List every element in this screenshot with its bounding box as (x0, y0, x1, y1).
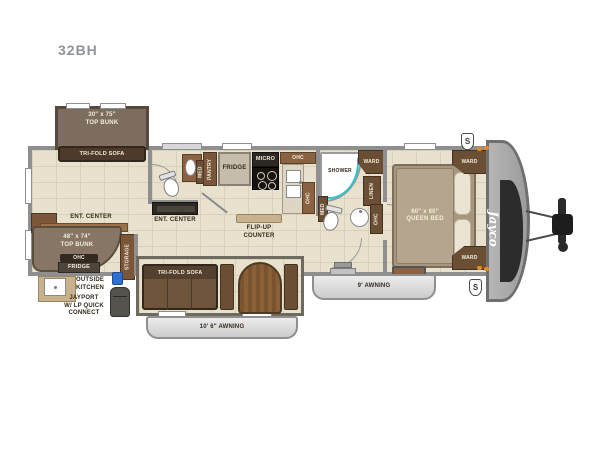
window-slot (404, 143, 436, 150)
window-slot (100, 103, 126, 109)
linen-label: LINEN (369, 183, 375, 199)
flip-up-counter (236, 214, 282, 223)
floorplan-canvas: 32BH 30" x 75" TOP BUNK TRI-FOLD SOFA EN… (0, 0, 600, 450)
window-slot (158, 311, 186, 317)
dinette-bench (220, 264, 234, 310)
microwave: MICRO (252, 152, 279, 167)
bunk-name-label: TOP BUNK (86, 120, 119, 128)
shower-label: SHOWER (323, 168, 357, 174)
bath-sink-icon (350, 208, 369, 227)
ohc-side-label: OHC (305, 192, 311, 204)
outside-kitchen-label: OUTSIDE KITCHEN (76, 277, 104, 292)
dinette-table (238, 262, 282, 314)
pantry-label: PANTRY (207, 158, 213, 179)
outside-kitchen-sink-icon (44, 278, 66, 296)
corner-ohc-label: OHC (73, 255, 85, 261)
dinette-bench (284, 264, 298, 310)
trifold-sofa-mid-label: TRI-FOLD SOFA (144, 270, 216, 277)
corner-fridge: FRIDGE (58, 262, 100, 273)
pantry-cabinet: PANTRY (203, 152, 217, 186)
bedroom-ward-top-label: WARD (461, 159, 477, 165)
trifold-sofa-mid: TRI-FOLD SOFA (142, 264, 218, 310)
corner-fridge-label: FRIDGE (68, 264, 90, 271)
window-slot (25, 168, 32, 204)
awning-front: 9' AWNING (312, 274, 436, 300)
corner-bunk-name-label: TOP BUNK (61, 242, 94, 250)
bunk-size-label: 30" x 75" (88, 112, 116, 120)
window-slot (25, 230, 32, 260)
jayport-label: JAYPORT W/ LP QUICK CONNECT (58, 295, 110, 318)
jayco-logo: Jayco (487, 192, 500, 266)
wall-segment (383, 240, 387, 272)
queen-bed: 60" x 80" QUEEN BED (396, 168, 454, 264)
bed-name-label: QUEEN BED (406, 216, 443, 224)
corner-bunk-label: 48" x 74" TOP BUNK (34, 234, 120, 249)
bath-ohc: OHC (370, 204, 383, 234)
microwave-label: MICRO (256, 156, 275, 163)
corner-ohc: OHC (60, 254, 98, 262)
galley-fridge: FRIDGE (218, 152, 251, 186)
hitch-coupler-icon (552, 214, 573, 235)
bunk-slide-30-label: 30" x 75" TOP BUNK (57, 112, 147, 127)
marker-light-icon (484, 146, 489, 150)
wall-segment (383, 150, 387, 202)
kitchen-sink-icon (286, 185, 301, 198)
bed-size-label: 60" x 80" (411, 209, 439, 217)
bath-ward-label: WARD (363, 159, 379, 165)
linen-cabinet: LINEN (363, 176, 381, 206)
awning-rear-label: 10' 6" AWNING (200, 324, 245, 332)
hitch-wheel-icon (558, 242, 568, 252)
awning-front-label: 9' AWNING (358, 283, 391, 291)
ohc-upper: OHC (280, 152, 316, 164)
lp-connector-icon (112, 272, 123, 285)
trifold-sofa-rear-label: TRI-FOLD SOFA (80, 151, 125, 158)
stabilizer-badge-top: S (461, 133, 474, 150)
galley-fridge-label: FRIDGE (223, 165, 247, 173)
pillow (454, 172, 471, 215)
ent-center-mid (152, 202, 198, 215)
trifold-sofa-rear: TRI-FOLD SOFA (58, 146, 146, 162)
stove-icon (252, 167, 279, 190)
bedroom-ward-bottom-label: WARD (461, 255, 477, 261)
marker-light-icon (484, 267, 489, 271)
bath-ohc-label: OHC (373, 213, 379, 225)
marker-light-icon (477, 147, 482, 151)
ent-center-rear-label: ENT. CENTER (52, 214, 130, 222)
marker-light-icon (477, 266, 482, 270)
ohc-side: OHC (302, 182, 315, 214)
storage-label: STORAGE (124, 244, 130, 270)
ent-center-mid-label: ENT. CENTER (148, 217, 202, 225)
ohc-upper-label: OHC (292, 155, 304, 161)
stabilizer-badge-bottom: S (469, 279, 482, 296)
corner-bunk-size-label: 48" x 74" (63, 234, 91, 242)
window-slot (162, 143, 202, 150)
model-label: 32BH (58, 42, 98, 58)
window-slot (66, 103, 90, 109)
grill-icon (110, 287, 130, 317)
awning-rear: 10' 6" AWNING (146, 316, 298, 339)
flip-up-counter-label: FLIP-UP COUNTER (234, 225, 284, 240)
window-slot (222, 143, 252, 150)
